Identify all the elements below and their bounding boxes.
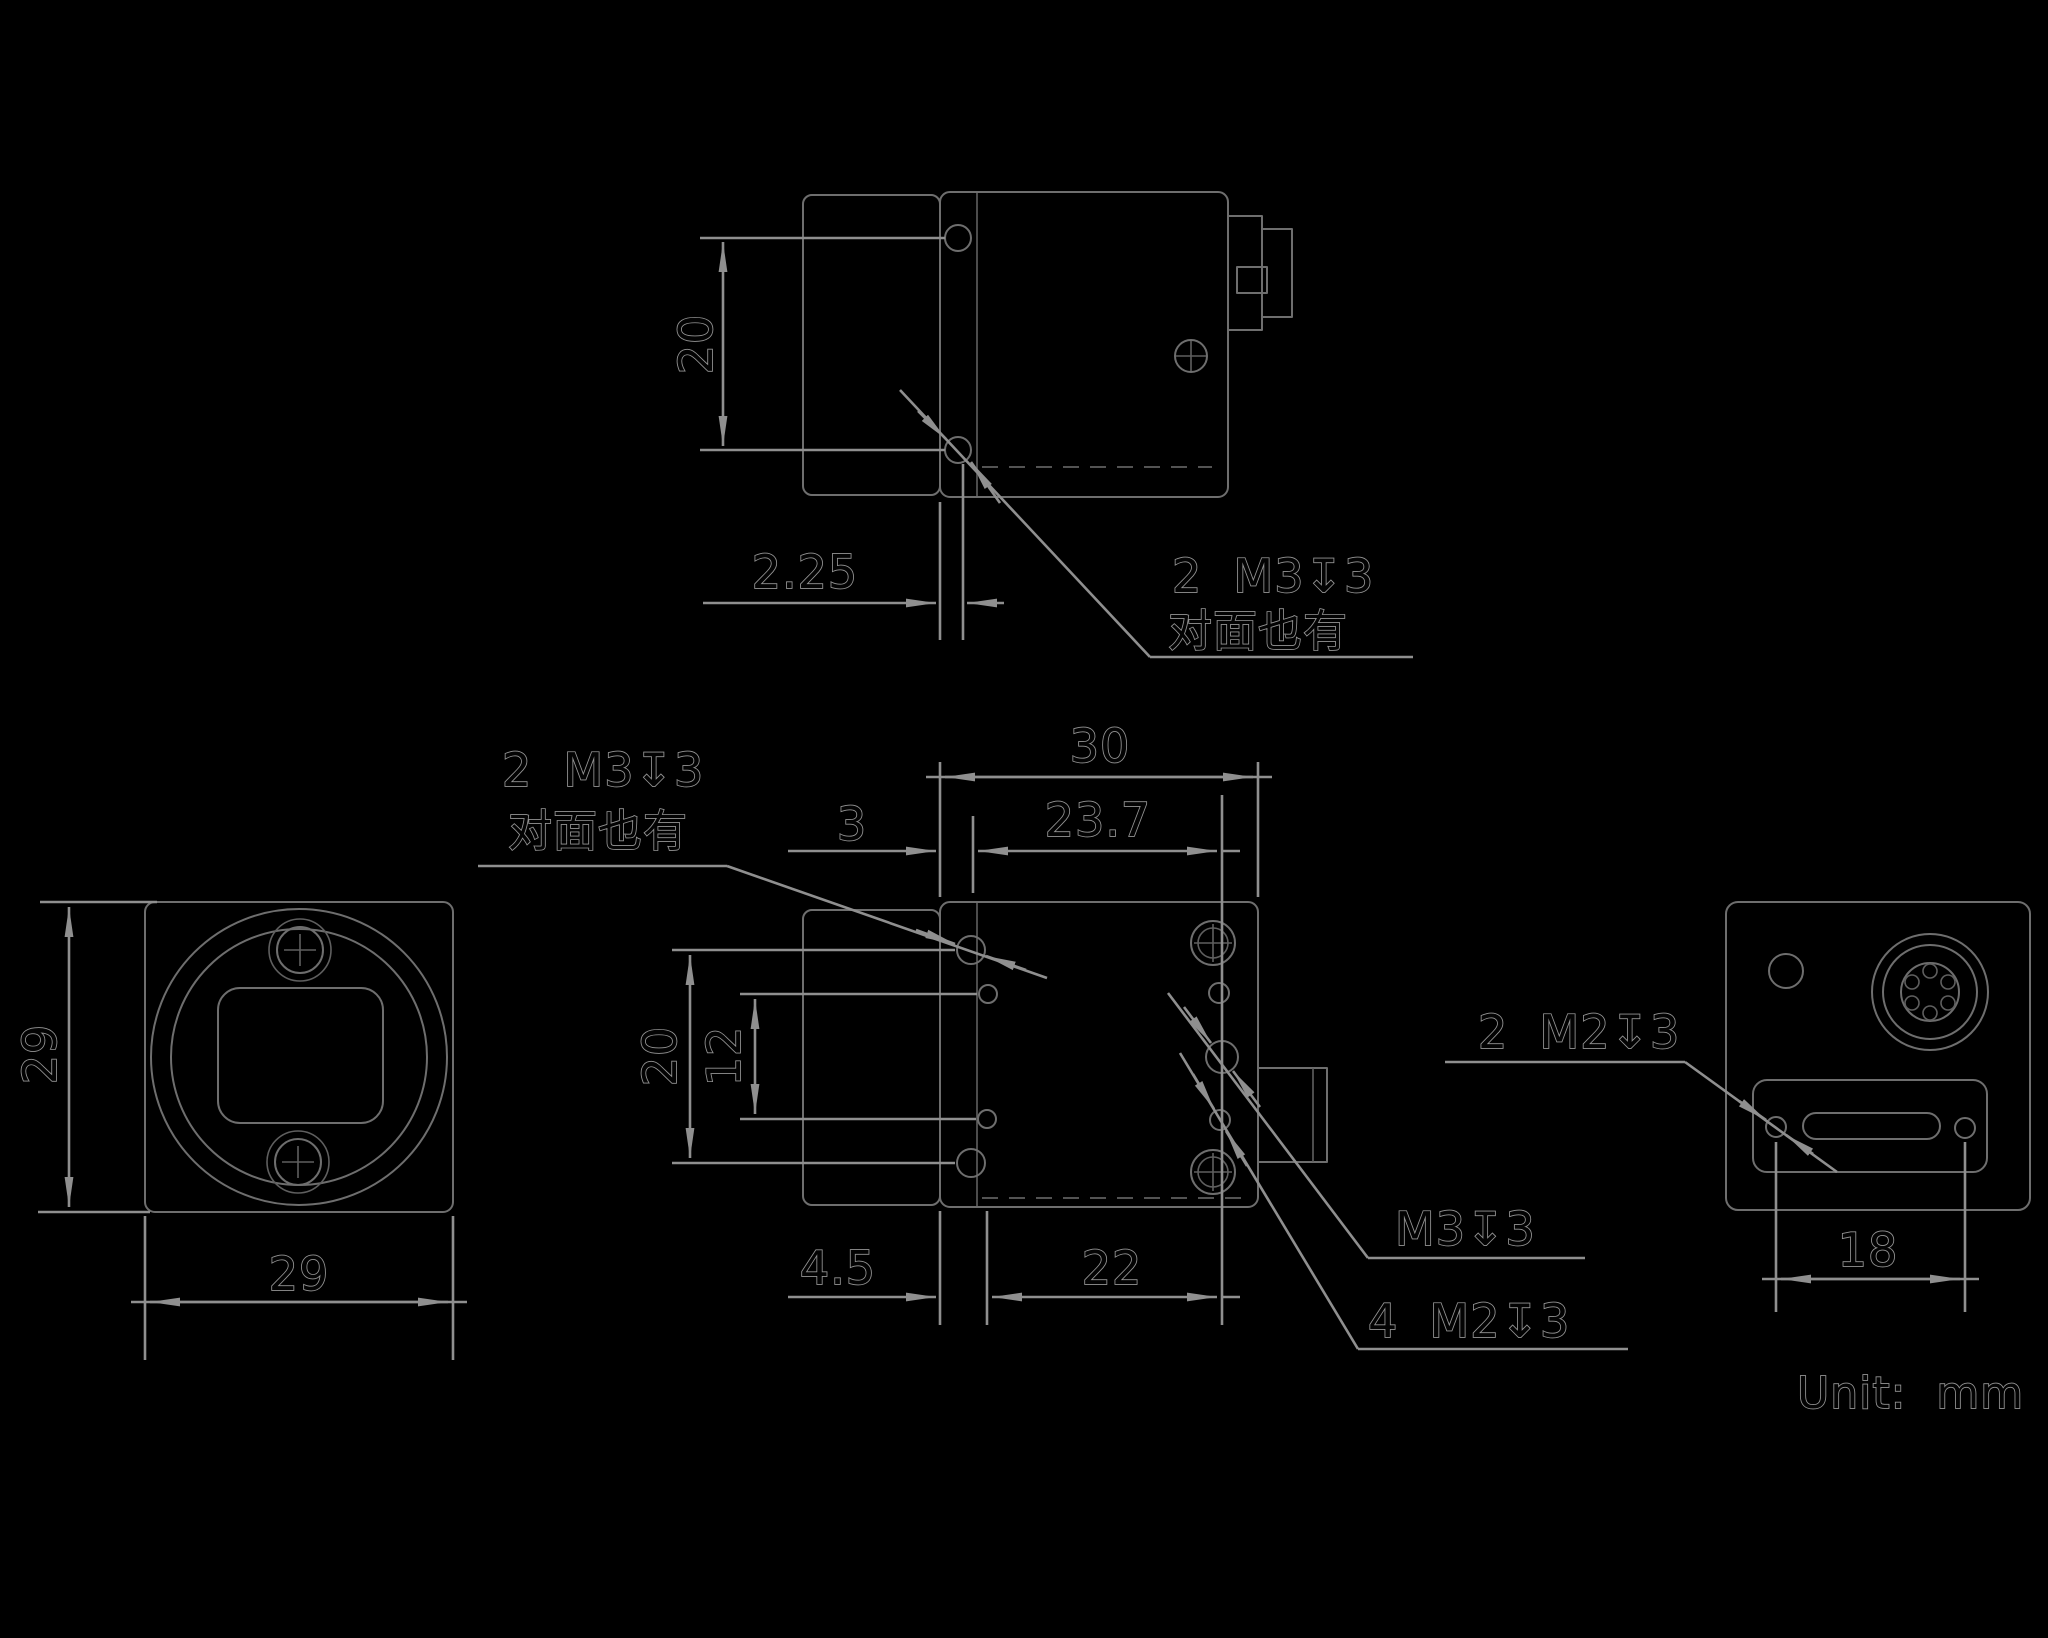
dim-label-front-29-h: 29 — [269, 1247, 330, 1301]
side-view: 2 M3↧3 对面也有 M3↧3 4 M2↧3 30 — [478, 719, 1628, 1349]
dim-label-side-4-5: 4.5 — [800, 1241, 876, 1295]
dim-front-29-h: 29 — [131, 1216, 467, 1360]
m2-hole-back-right — [1955, 1118, 1975, 1138]
led-indicator — [1769, 954, 1803, 988]
leader-back-m2: 2 M2↧3 — [1445, 1005, 1837, 1172]
dim-side-4-5-22: 4.5 22 — [788, 1211, 1240, 1325]
dim-label-side-3: 3 — [837, 797, 867, 851]
dim-label-side-30: 30 — [1070, 719, 1131, 773]
m2-hole-rear-a — [1209, 983, 1229, 1003]
unit-note: Unit: mm — [1797, 1368, 2024, 1419]
dim-back-18: 18 — [1762, 1142, 1979, 1312]
note-side-m2-group: 4 M2↧3 — [1368, 1294, 1570, 1348]
front-view: 29 29 — [13, 902, 467, 1360]
lens-mount-inner-ring — [171, 929, 427, 1185]
dim-label-side-12: 12 — [697, 1026, 751, 1087]
camera-body-side — [940, 902, 1258, 1207]
note-top-thread-cn: 对面也有 — [1168, 606, 1348, 657]
dim-side-20: 20 — [633, 950, 955, 1163]
front-screw-bottom — [267, 1131, 329, 1193]
case-screw-side-top — [1191, 921, 1235, 965]
note-side-thread: 2 M3↧3 — [502, 743, 704, 797]
note-back-m2: 2 M2↧3 — [1478, 1005, 1680, 1059]
camera-body-back — [1726, 902, 2030, 1210]
case-screw-top — [1175, 340, 1207, 372]
m2-hole-side-a — [979, 985, 997, 1003]
dim-top-2-25: 2.25 — [703, 464, 1004, 640]
data-port-recess — [1753, 1080, 1987, 1172]
data-port-slot — [1803, 1113, 1940, 1139]
rear-connector-side — [1258, 1068, 1327, 1162]
drawing-page: 20 2.25 2 M3↧3 对面也有 — [0, 0, 2048, 1638]
dim-label-side-20: 20 — [633, 1026, 687, 1087]
dim-front-29-v: 29 — [13, 902, 157, 1212]
top-view: 20 2.25 2 M3↧3 对面也有 — [669, 192, 1413, 657]
rear-connector-top — [1228, 216, 1292, 330]
lens-barrel-side — [803, 910, 940, 1205]
dim-side-12: 12 — [697, 994, 977, 1119]
lens-mount-outer-ring — [151, 909, 447, 1205]
sensor-window — [218, 988, 383, 1123]
camera-body-top — [940, 192, 1228, 497]
note-side-thread-cn: 对面也有 — [508, 806, 688, 857]
dim-label-side-23-7: 23.7 — [1045, 793, 1151, 847]
dim-label-top-20: 20 — [669, 314, 723, 375]
dimension-drawing-canvas: 20 2.25 2 M3↧3 对面也有 — [0, 0, 2048, 1638]
case-screw-side-bottom — [1191, 1150, 1235, 1194]
note-side-m3-single: M3↧3 — [1395, 1202, 1536, 1256]
m3-hole-side-a — [957, 936, 985, 964]
dim-label-back-18: 18 — [1838, 1223, 1899, 1277]
m3-hole-side-b — [957, 1149, 985, 1177]
dim-label-top-2-25: 2.25 — [752, 545, 858, 599]
power-io-connector — [1872, 934, 1988, 1050]
camera-body-front — [145, 902, 453, 1212]
m3-hole-top-a — [945, 225, 971, 251]
note-top-thread: 2 M3↧3 — [1172, 549, 1374, 603]
dim-label-side-22: 22 — [1082, 1241, 1143, 1295]
m2-hole-side-b — [978, 1110, 996, 1128]
dim-label-front-29-v: 29 — [13, 1024, 67, 1085]
dim-top-20: 20 — [669, 238, 945, 450]
